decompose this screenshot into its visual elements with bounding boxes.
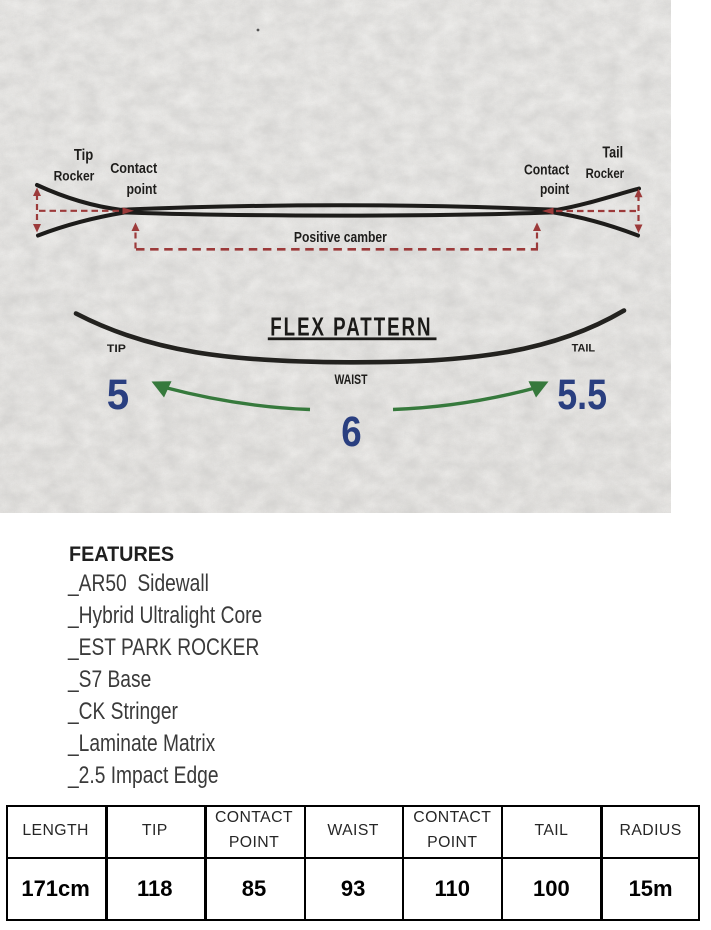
- svg-text:point: point: [540, 181, 569, 198]
- svg-text:6: 6: [341, 408, 361, 456]
- svg-text:Contact: Contact: [524, 162, 569, 179]
- svg-text:Tail: Tail: [602, 144, 623, 161]
- svg-text:Contact: Contact: [110, 160, 157, 177]
- svg-text:Tip: Tip: [74, 147, 93, 164]
- svg-text:FLEX PATTERN: FLEX PATTERN: [270, 311, 432, 341]
- svg-text:5: 5: [107, 371, 129, 419]
- svg-text:Rocker: Rocker: [586, 166, 625, 182]
- svg-text:TAIL: TAIL: [572, 343, 596, 355]
- svg-text:point: point: [127, 181, 157, 198]
- svg-text:TIP: TIP: [107, 343, 127, 355]
- svg-text:Rocker: Rocker: [54, 169, 95, 185]
- svg-text:Positive camber: Positive camber: [294, 229, 387, 246]
- svg-text:WAIST: WAIST: [335, 372, 369, 387]
- svg-text:5.5: 5.5: [557, 371, 607, 419]
